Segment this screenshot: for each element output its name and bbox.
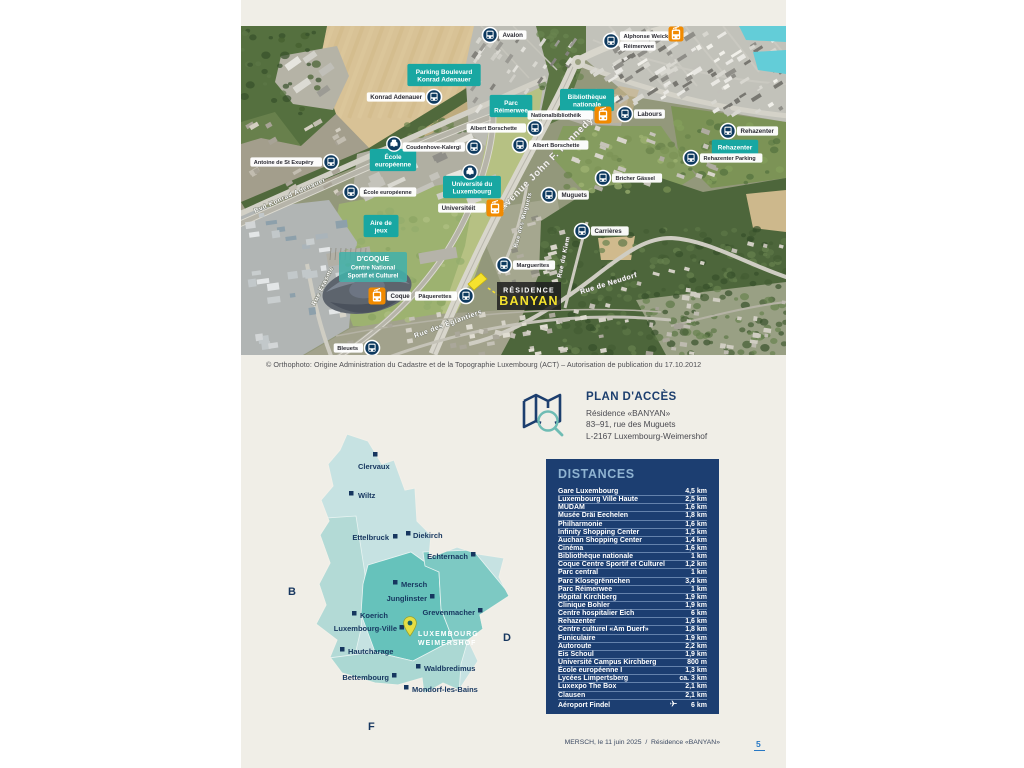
svg-text:Mondorf-les-Bains: Mondorf-les-Bains: [412, 685, 478, 694]
svg-text:Echternach: Echternach: [427, 552, 468, 561]
svg-text:Junglinster: Junglinster: [387, 594, 428, 603]
svg-text:WEIMERSHOF: WEIMERSHOF: [418, 640, 476, 647]
svg-text:BANYAN: BANYAN: [499, 294, 559, 308]
svg-text:Clervaux: Clervaux: [358, 462, 391, 471]
svg-text:Parking Boulevard: Parking Boulevard: [416, 69, 473, 76]
svg-text:jeux: jeux: [374, 227, 388, 234]
svg-text:Hautcharage: Hautcharage: [348, 647, 393, 656]
svg-text:B: B: [288, 586, 296, 598]
svg-text:européenne: européenne: [375, 161, 412, 168]
svg-text:Mersch: Mersch: [401, 580, 428, 589]
svg-text:Grevenmacher: Grevenmacher: [422, 608, 475, 617]
svg-text:Rehazenter Parking: Rehazenter Parking: [704, 156, 757, 162]
svg-text:Avalon: Avalon: [503, 32, 524, 39]
svg-text:Alphonse Weicker: Alphonse Weicker: [624, 34, 675, 40]
svg-text:F: F: [368, 721, 375, 733]
svg-text:Rehazenter: Rehazenter: [718, 145, 753, 152]
svg-text:Coque: Coque: [391, 293, 411, 300]
svg-text:Muguets: Muguets: [562, 192, 588, 199]
svg-text:Luxembourg-Ville: Luxembourg-Ville: [334, 624, 397, 633]
svg-text:Marguerites: Marguerites: [517, 263, 550, 269]
svg-text:Bleuets: Bleuets: [337, 346, 358, 352]
svg-text:Pâquerettes: Pâquerettes: [418, 294, 451, 300]
svg-text:Labours: Labours: [638, 111, 663, 118]
svg-text:Koerich: Koerich: [360, 611, 388, 620]
svg-text:Universitéit: Universitéit: [442, 205, 476, 212]
svg-text:Waldbredimus: Waldbredimus: [424, 664, 475, 673]
svg-text:Aire de: Aire de: [370, 220, 392, 227]
svg-text:Bricher Gässel: Bricher Gässel: [616, 176, 656, 182]
svg-text:LUXEMBOURG: LUXEMBOURG: [418, 631, 479, 638]
svg-text:Réimerwee: Réimerwee: [494, 107, 528, 114]
svg-text:Réimerwee: Réimerwee: [624, 44, 655, 50]
svg-text:Luxembourg: Luxembourg: [453, 188, 492, 195]
svg-text:Bibliothèque: Bibliothèque: [568, 94, 607, 101]
svg-text:Parc: Parc: [504, 100, 518, 107]
svg-text:Antoine de St Exupéry: Antoine de St Exupéry: [254, 160, 315, 166]
svg-text:Albert Borschette: Albert Borschette: [533, 143, 580, 149]
svg-text:Sportif et Culturel: Sportif et Culturel: [348, 274, 399, 280]
svg-text:École européenne: École européenne: [364, 188, 412, 196]
svg-text:Albert Borschette: Albert Borschette: [470, 126, 517, 132]
svg-text:D'COQUE: D'COQUE: [357, 256, 390, 263]
svg-text:Centre National: Centre National: [351, 266, 396, 272]
svg-text:Université du: Université du: [452, 181, 493, 188]
svg-text:Konrad Adenauer: Konrad Adenauer: [417, 76, 471, 83]
svg-text:Wiltz: Wiltz: [358, 491, 376, 500]
svg-text:Diekirch: Diekirch: [413, 531, 443, 540]
svg-text:Ettelbruck: Ettelbruck: [352, 533, 390, 542]
svg-text:D: D: [503, 632, 511, 644]
svg-text:Carrières: Carrières: [595, 228, 623, 235]
svg-text:Rehazenter: Rehazenter: [741, 128, 775, 135]
svg-text:École: École: [384, 152, 401, 161]
svg-text:Konrad Adenauer: Konrad Adenauer: [370, 94, 422, 101]
svg-text:Bettembourg: Bettembourg: [342, 673, 389, 682]
svg-text:Nationalbibliothéik: Nationalbibliothéik: [531, 113, 582, 119]
svg-text:Coudenhove-Kalergi: Coudenhove-Kalergi: [406, 145, 461, 151]
